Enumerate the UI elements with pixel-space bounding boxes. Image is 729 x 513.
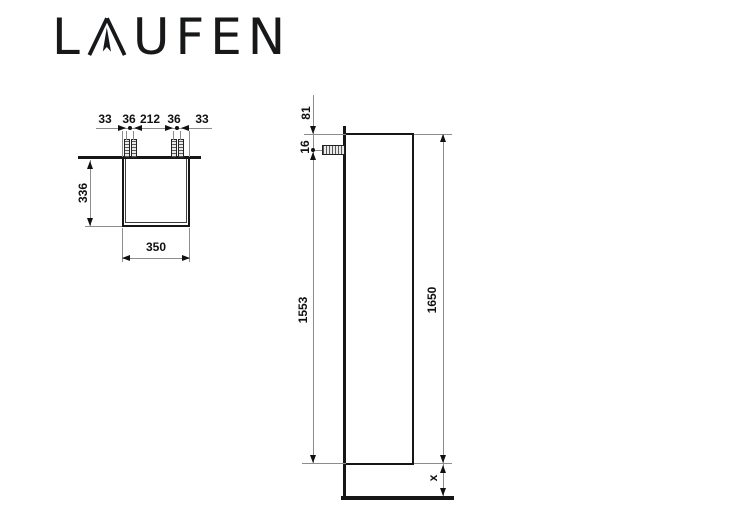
mounting-screw-icon — [322, 145, 345, 155]
side-view-drawing: 81 16 1553 1650 x — [0, 0, 729, 513]
extension-line — [414, 134, 452, 135]
dimension-arrow — [440, 488, 446, 496]
wall-line-side-view — [343, 126, 346, 499]
dim-label-1650: 1650 — [425, 280, 439, 320]
dimension-arrow — [440, 465, 446, 473]
dimension-arrow — [310, 455, 316, 463]
right-dimension-line — [443, 134, 444, 496]
technical-drawing-sheet: L UFEN — [0, 0, 729, 513]
dim-label-1553: 1553 — [296, 290, 310, 330]
dim-label-16: 16 — [298, 127, 312, 167]
dimension-arrow — [440, 134, 446, 142]
cabinet-front-edge — [412, 133, 414, 465]
dimension-arrow — [440, 455, 446, 463]
cabinet-bottom-edge — [346, 463, 414, 465]
dim-label-x: x — [426, 458, 440, 498]
extension-line — [302, 463, 346, 464]
cabinet-top-edge — [346, 133, 414, 135]
